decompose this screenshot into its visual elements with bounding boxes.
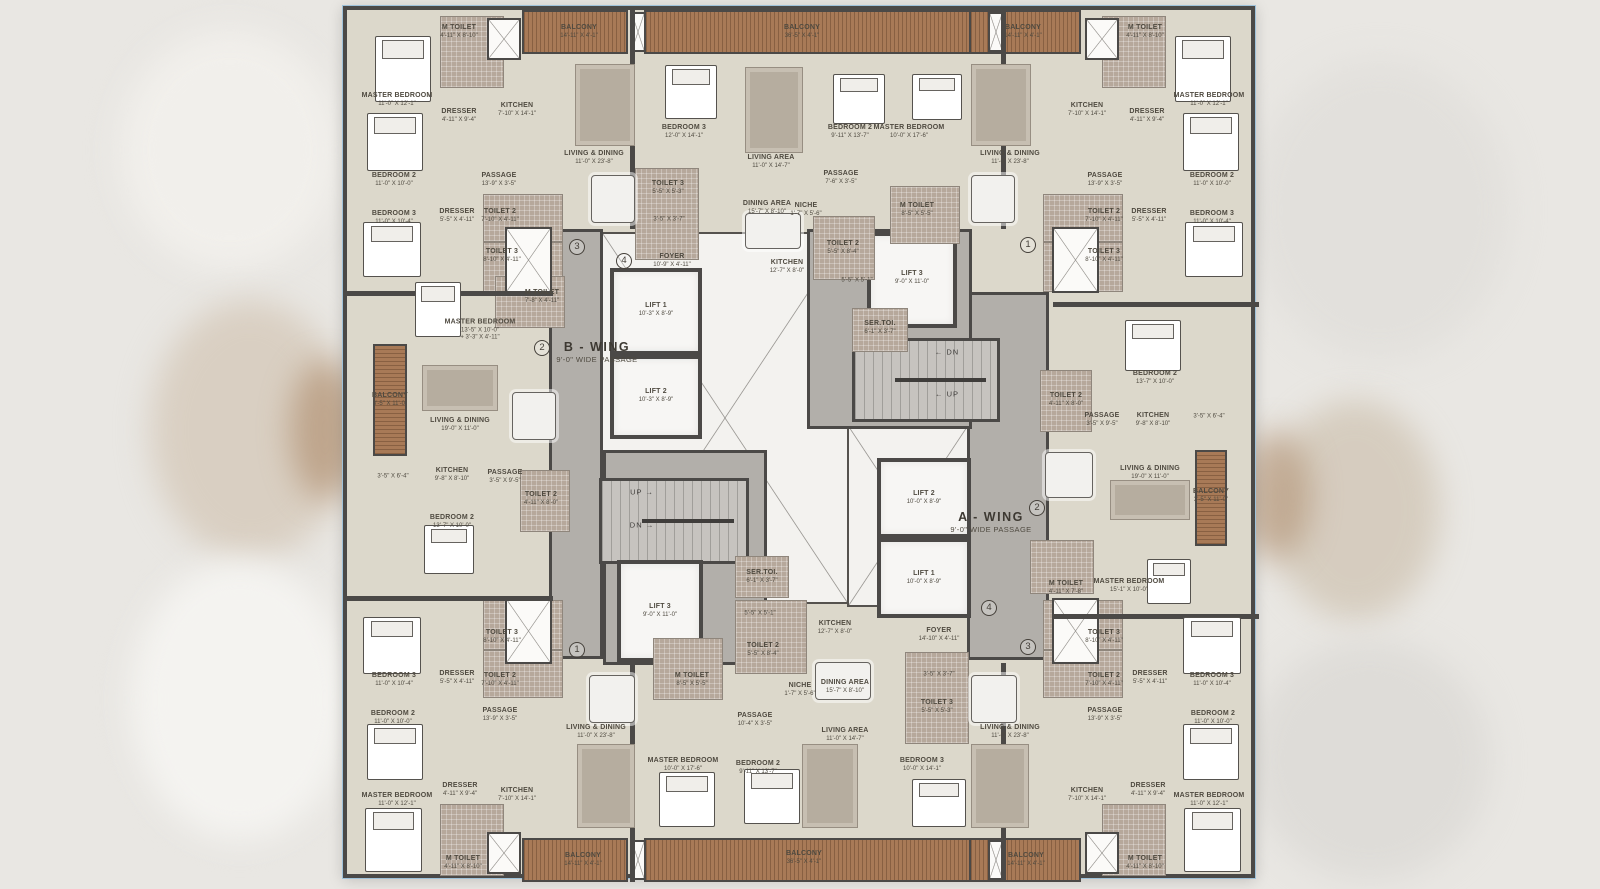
room-label: LIVING & DINING19'-0" X 11'-0" <box>1120 465 1180 481</box>
room-label: PASSAGE3'-5" X 9'-5" <box>1084 412 1119 428</box>
room-label: MASTER BEDROOM15'-1" X 10'-0" <box>1094 578 1165 594</box>
room-label: 3'-5" X 6'-4" <box>1193 413 1224 420</box>
room-label: TOILET 35'-5" X 5'-3" <box>921 699 953 715</box>
rug <box>802 744 858 828</box>
room-label: TOILET 38'-10" X 4'-11" <box>1085 629 1122 645</box>
room-label: KITCHEN12'-7" X 8'-0" <box>770 259 805 275</box>
circled-number-marker: 1 <box>569 642 585 658</box>
room-label: BALCONY36'-5" X 4'-1" <box>784 24 820 40</box>
room-label: DRESSER4'-11" X 9'-4" <box>441 108 476 124</box>
bed <box>1125 320 1181 371</box>
room-label: BEDROOM 213'-7" X 10'-0" <box>1133 370 1177 386</box>
room-label: PASSAGE13'-9" X 3'-5" <box>481 172 516 188</box>
room-label: MASTER BEDROOM10'-0" X 17'-6" <box>648 757 719 773</box>
room-label: BEDROOM 213'-7" X 10'-0" <box>430 514 474 530</box>
room-label: BALCONY14'-11" X 4'-1" <box>1007 852 1044 868</box>
circled-number-marker: 2 <box>1029 500 1045 516</box>
room-label: TOILET 27'-10" X 4'-11" <box>1085 672 1122 688</box>
room-label: PASSAGE13'-9" X 3'-5" <box>1087 172 1122 188</box>
bed <box>1183 617 1241 674</box>
room-label: TOILET 24'-11" X 8'-0" <box>524 491 558 507</box>
room-label: BALCONY14'-11" X 4'-1" <box>560 24 597 40</box>
bed <box>659 772 715 827</box>
room-label: PASSAGE13'-9" X 3'-5" <box>1087 707 1122 723</box>
room-label: BALCONY3'-5" X 11'-0" <box>372 392 408 408</box>
room-label: BEDROOM 311'-0" X 10'-4" <box>1190 210 1234 226</box>
room-label: TOILET 27'-10" X 4'-11" <box>1085 208 1122 224</box>
room-label: LIVING & DINING11'-0" X 23'-8" <box>566 724 626 740</box>
room-label: DRESSER5'-5" X 4'-11" <box>1132 670 1167 686</box>
room-label: MASTER BEDROOM11'-0" X 12'-1" <box>1174 792 1245 808</box>
circled-number-marker: 4 <box>616 253 632 269</box>
wall-segment <box>1053 302 1259 307</box>
bed <box>1183 113 1239 171</box>
bed <box>1183 724 1239 780</box>
wing-label: B - WING9'-0" WIDE PASSAGE <box>556 340 637 364</box>
room-label: LIFT 210'-0" X 8'-9" <box>907 490 942 506</box>
bed <box>363 617 421 674</box>
room-label: PASSAGE7'-6" X 3'-5" <box>823 170 858 186</box>
rug <box>577 744 635 828</box>
background-blur <box>120 30 340 270</box>
room-label: SER.TOI.6'-1" X 3'-7" <box>864 320 895 336</box>
rug <box>971 744 1029 828</box>
room-label: LIVING & DINING11'-0" X 23'-8" <box>980 150 1040 166</box>
room-label: SER.TOI.6'-1" X 3'-7" <box>746 569 777 585</box>
room-label: LIFT 39'-0" X 11'-0" <box>895 270 929 286</box>
room-label: PASSAGE3'-5" X 9'-5" <box>487 469 522 485</box>
bed <box>363 222 421 277</box>
dining-table <box>512 392 556 440</box>
bed <box>367 113 423 171</box>
room-label: MASTER BEDROOM11'-0" X 12'-1" <box>362 92 433 108</box>
bed <box>912 74 962 120</box>
room-label: KITCHEN7'-10" X 14'-1" <box>1068 787 1106 803</box>
room-label: KITCHEN7'-10" X 14'-1" <box>498 102 536 118</box>
background-blur <box>1250 60 1510 360</box>
dining-table <box>745 213 801 249</box>
dining-table <box>589 675 635 723</box>
service-shaft <box>487 18 521 60</box>
wing-label: A - WING9'-0" WIDE PASSAGE <box>950 510 1031 534</box>
bed <box>1184 808 1241 872</box>
room-label: BALCONY3'-5" X 11'-0" <box>1193 488 1229 504</box>
wall-segment <box>347 596 553 601</box>
rug <box>575 64 635 146</box>
dining-table <box>971 675 1017 723</box>
room-label: 3'-5" X 3'-7" <box>653 216 684 223</box>
room-label: BALCONY14'-11" X 4'-1" <box>564 852 601 868</box>
bed <box>1185 222 1243 277</box>
floor-plan-screenshot: M TOILET4'-11" X 8'-10"BALCONY14'-11" X … <box>0 0 1600 889</box>
bed <box>367 724 423 780</box>
room-label: LIFT 110'-0" X 8'-9" <box>907 570 942 586</box>
circled-number-marker: 2 <box>534 340 550 356</box>
circled-number-marker: 3 <box>569 239 585 255</box>
room-label: DRESSER4'-11" X 9'-4" <box>442 782 477 798</box>
room-label: MASTER BEDROOM13'-5" X 10'-0"+ 3'-3" X 4… <box>445 318 516 341</box>
bed <box>365 808 422 872</box>
service-shaft <box>1085 832 1119 874</box>
rug <box>1110 480 1190 520</box>
room-label: LIVING & DINING11'-0" X 23'-8" <box>980 724 1040 740</box>
room-label: M TOILET4'-11" X 8'-10" <box>440 24 477 40</box>
room-label: TOILET 38'-10" X 4'-11" <box>483 629 520 645</box>
circled-number-marker: 1 <box>1020 237 1036 253</box>
room-label: DRESSER4'-11" X 9'-4" <box>1129 108 1164 124</box>
rug <box>745 67 803 153</box>
room-label: FOYER14'-10" X 4'-11" <box>919 627 960 643</box>
toilet-zone <box>653 638 723 700</box>
room-label: 3'-5" X 3'-7" <box>923 671 954 678</box>
room-label: NICHE1'-7" X 5'-6" <box>790 202 821 218</box>
room-label: M TOILET7'-8" X 4'-11" <box>525 289 559 305</box>
room-label: BEDROOM 310'-0" X 14'-1" <box>900 757 944 773</box>
circled-number-marker: 4 <box>981 600 997 616</box>
room-label: FOYER10'-9" X 4'-11" <box>653 253 690 269</box>
room-label: LIVING AREA11'-0" X 14'-7" <box>747 154 794 170</box>
room-label: BEDROOM 311'-0" X 10'-4" <box>372 672 416 688</box>
room-label: DINING AREA15'-7" X 8'-10" <box>821 679 869 695</box>
room-label: M TOILET4'-11" X 8'-10" <box>444 855 481 871</box>
room-label: NICHE1'-7" X 5'-6" <box>784 682 815 698</box>
room-label: TOILET 25'-5" X 8'-4" <box>747 642 779 658</box>
stair-direction-label: DN → <box>630 520 654 529</box>
room-label: LIVING & DINING11'-0" X 23'-8" <box>564 150 624 166</box>
background-blur <box>1250 640 1490 880</box>
bed <box>424 525 474 574</box>
circled-number-marker: 3 <box>1020 639 1036 655</box>
bed <box>833 74 885 124</box>
room-label: BEDROOM 211'-0" X 10'-0" <box>1191 710 1235 726</box>
room-label: DRESSER5'-5" X 4'-11" <box>439 208 474 224</box>
room-label: PASSAGE13'-9" X 3'-5" <box>482 707 517 723</box>
dining-table <box>591 175 635 223</box>
room-label: M TOILET8'-5" X 5'-5" <box>675 672 709 688</box>
room-label: LIFT 210'-3" X 8'-9" <box>639 388 674 404</box>
room-label: BALCONY14'-11" X 4'-1" <box>1004 24 1041 40</box>
room-label: MASTER BEDROOM11'-0" X 12'-1" <box>362 792 433 808</box>
service-shaft <box>1085 18 1119 60</box>
room-label: BEDROOM 29'-11" X 13'-7" <box>828 124 872 140</box>
room-label: LIVING AREA11'-0" X 14'-7" <box>821 727 868 743</box>
room-label: LIFT 110'-3" X 8'-9" <box>639 302 674 318</box>
room-label: LIFT 39'-0" X 11'-0" <box>643 603 677 619</box>
service-shaft <box>487 832 521 874</box>
room-label: KITCHEN9'-8" X 8'-10" <box>435 467 470 483</box>
dining-table <box>1045 452 1093 498</box>
staircase <box>599 478 749 564</box>
plan-layers: M TOILET4'-11" X 8'-10"BALCONY14'-11" X … <box>347 10 1251 874</box>
room-label: MASTER BEDROOM11'-0" X 12'-1" <box>1174 92 1245 108</box>
room-label: DRESSER5'-5" X 4'-11" <box>1131 208 1166 224</box>
room-label: KITCHEN7'-10" X 14'-1" <box>498 787 536 803</box>
room-label: DRESSER4'-11" X 9'-4" <box>1130 782 1165 798</box>
stair-direction-label: ← UP <box>935 389 959 398</box>
room-label: BEDROOM 29'-11" X 13'-7" <box>736 760 780 776</box>
stair-direction-label: UP → <box>630 487 654 496</box>
room-label: BEDROOM 312'-0" X 14'-1" <box>662 124 706 140</box>
bed <box>744 769 800 824</box>
stair-direction-label: ← DN <box>935 347 959 356</box>
room-label: KITCHEN7'-10" X 14'-1" <box>1068 102 1106 118</box>
bed <box>912 779 966 827</box>
room-label: MASTER BEDROOM10'-0" X 17'-6" <box>874 124 945 140</box>
room-label: BALCONY36'-5" X 4'-1" <box>786 850 822 866</box>
room-label: KITCHEN9'-8" X 8'-10" <box>1136 412 1171 428</box>
room-label: M TOILET4'-11" X 7'-8" <box>1049 580 1083 596</box>
rug <box>422 365 498 411</box>
room-label: TOILET 24'-11" X 8'-0" <box>1049 392 1083 408</box>
room-label: M TOILET4'-11" X 8'-10" <box>1126 24 1163 40</box>
dining-table <box>971 175 1015 223</box>
room-label: M TOILET4'-11" X 8'-10" <box>1126 855 1163 871</box>
room-label: M TOILET8'-5" X 5'-5" <box>900 202 934 218</box>
room-label: TOILET 35'-5" X 5'-3" <box>652 180 684 196</box>
room-label: TOILET 27'-10" X 4'-11" <box>481 208 518 224</box>
room-label: DINING AREA15'-7" X 8'-10" <box>743 200 791 216</box>
room-label: 5'-5" X 5'-1" <box>841 277 872 284</box>
room-label: DRESSER5'-5" X 4'-11" <box>439 670 474 686</box>
room-label: BEDROOM 211'-0" X 10'-0" <box>1190 172 1234 188</box>
room-label: BEDROOM 211'-0" X 10'-0" <box>371 710 415 726</box>
room-label: 3'-5" X 6'-4" <box>377 473 408 480</box>
room-label: KITCHEN12'-7" X 8'-0" <box>818 620 853 636</box>
floor-plan: M TOILET4'-11" X 8'-10"BALCONY14'-11" X … <box>343 6 1255 878</box>
room-label: TOILET 25'-5" X 8'-4" <box>827 240 859 256</box>
toilet-zone <box>905 652 969 744</box>
room-label: TOILET 38'-10" X 4'-11" <box>1085 248 1122 264</box>
room-label: TOILET 38'-10" X 4'-11" <box>483 248 520 264</box>
rug <box>971 64 1031 146</box>
room-label: BEDROOM 311'-0" X 10'-4" <box>372 210 416 226</box>
room-label: TOILET 27'-10" X 4'-11" <box>481 672 518 688</box>
room-label: BEDROOM 311'-0" X 10'-4" <box>1190 672 1234 688</box>
bed <box>665 65 717 119</box>
room-label: BEDROOM 211'-0" X 10'-0" <box>372 172 416 188</box>
background-blur <box>130 560 350 840</box>
room-label: PASSAGE10'-4" X 3'-5" <box>737 712 772 728</box>
room-label: 5'-5" X 5'-1" <box>744 610 775 617</box>
room-label: LIVING & DINING19'-0" X 11'-0" <box>430 417 490 433</box>
